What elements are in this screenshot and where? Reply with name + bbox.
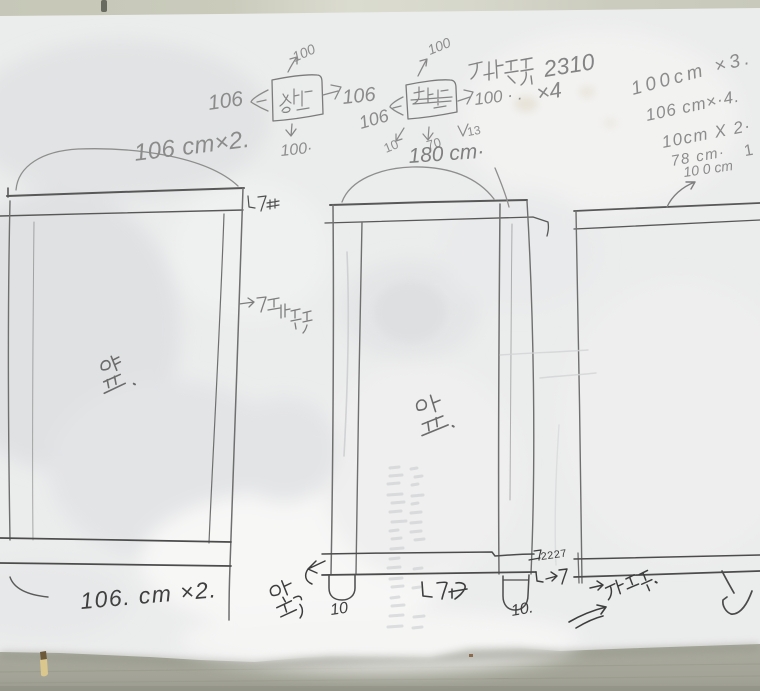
svg-text:10: 10: [329, 600, 349, 619]
svg-text:100·: 100·: [280, 140, 314, 160]
svg-text:×4: ×4: [535, 77, 564, 106]
svg-text:106: 106: [341, 84, 377, 109]
svg-text:106: 106: [206, 87, 244, 115]
svg-text:13: 13: [466, 123, 482, 139]
